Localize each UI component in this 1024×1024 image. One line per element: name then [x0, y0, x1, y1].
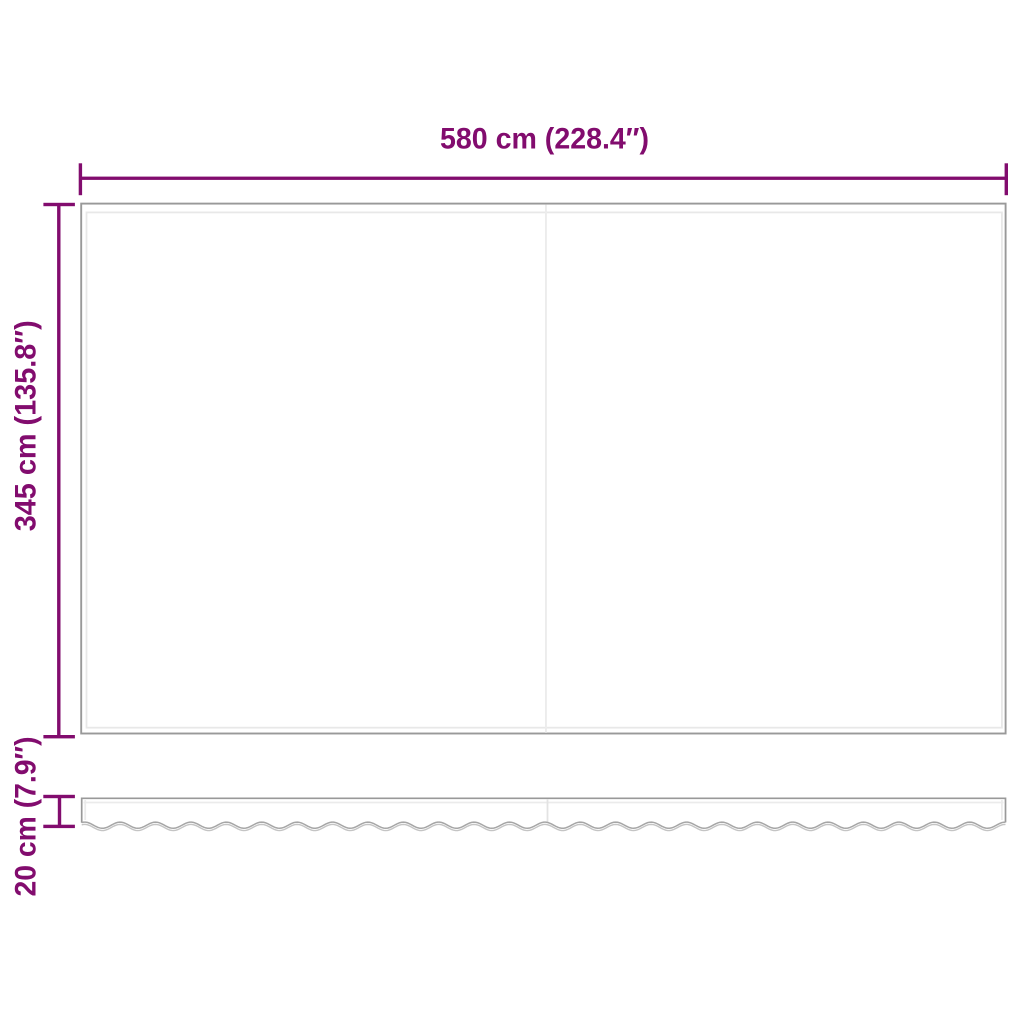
svg-text:20 cm (7.9″): 20 cm (7.9″) [9, 737, 42, 897]
svg-text:580 cm (228.4″): 580 cm (228.4″) [440, 122, 649, 155]
svg-text:345 cm (135.8″): 345 cm (135.8″) [9, 320, 42, 531]
